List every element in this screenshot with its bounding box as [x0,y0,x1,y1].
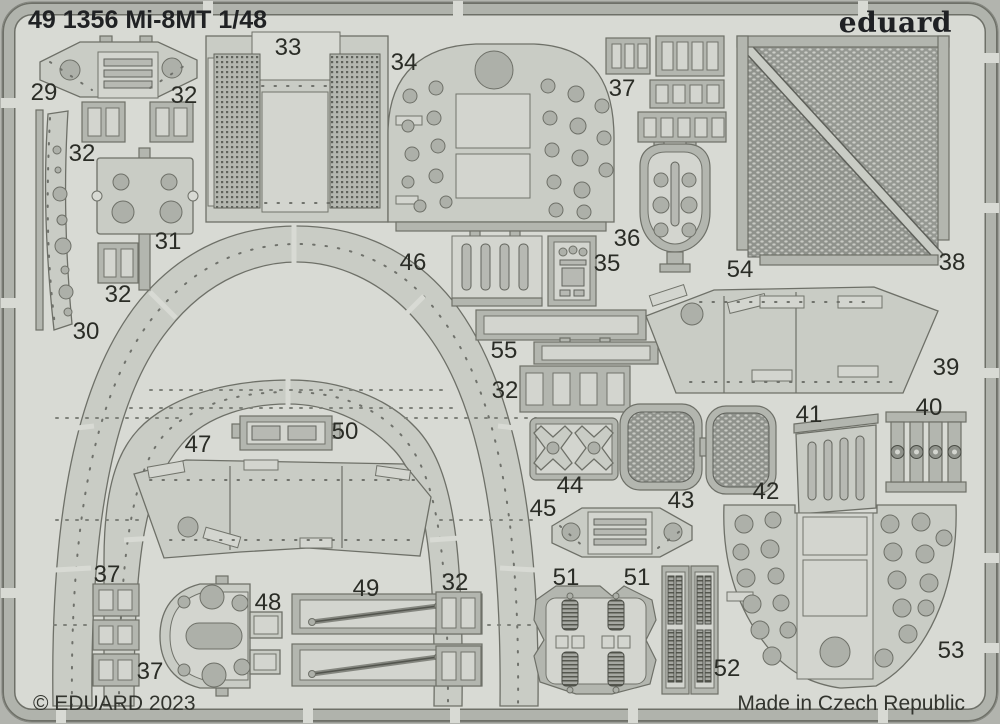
part-label-33: 33 [275,34,302,61]
sheet-title: 49 1356 Mi-8MT 1/48 [28,6,267,34]
part-32-bracket-a [82,102,125,142]
eduard-logo: eduard [839,6,952,39]
part-32-bracket-e [436,646,481,686]
part-label-41: 41 [796,401,823,428]
part-label-37: 37 [94,561,121,588]
part-47-floor-panel [134,460,431,558]
part-label-45: 45 [530,495,557,522]
part-label-42: 42 [753,478,780,505]
part-label-46: 46 [400,249,427,276]
part-50-bracket [232,416,340,450]
fret-sheet-graphic: 49 1356 Mi-8MT 1/48 eduard © EDUARD 2023… [0,0,1000,724]
part-label-32: 32 [442,569,469,596]
part-label-39: 39 [933,354,960,381]
part-label-54: 54 [727,256,754,283]
part-label-35: 35 [594,250,621,277]
part-label-32: 32 [105,281,132,308]
photoetch-fret-photo: 49 1356 Mi-8MT 1/48 eduard © EDUARD 2023… [0,0,1000,724]
part-32-slat-strip [520,366,630,412]
part-label-55: 55 [491,337,518,364]
part-label-50: 50 [332,418,359,445]
part-51-seatbelts [534,586,656,694]
part-32-bracket-c [98,243,138,283]
part-label-32: 32 [171,82,198,109]
part-label-47: 47 [185,431,212,458]
part-label-53: 53 [938,637,965,664]
part-label-31: 31 [155,228,182,255]
part-label-43: 43 [668,487,695,514]
part-label-40: 40 [916,394,943,421]
part-41-louvre-panel [794,414,878,514]
part-label-30: 30 [73,318,100,345]
part-label-29: 29 [31,79,58,106]
part-label-48: 48 [255,589,282,616]
part-45-panel [552,508,692,557]
part-label-52: 52 [714,655,741,682]
part-label-51: 51 [624,564,651,591]
part-label-49: 49 [353,575,380,602]
made-in-text: Made in Czech Republic [737,692,965,715]
part-44-cross-plates [530,418,618,480]
part-label-44: 44 [557,472,584,499]
part-label-34: 34 [391,49,418,76]
part-label-51: 51 [553,564,580,591]
copyright-text: © EDUARD 2023 [33,692,196,715]
part-label-36: 36 [614,225,641,252]
part-32-bracket-d [436,592,481,634]
part-39-floor-panel [646,285,938,393]
part-38-54-mesh-screens [737,36,949,265]
part-label-32: 32 [69,140,96,167]
part-label-37: 37 [137,658,164,685]
part-37-brackets-bottom [93,584,139,686]
part-label-32: 32 [492,377,519,404]
part-35-harness [548,236,596,306]
part-label-37: 37 [609,75,636,102]
part-label-38: 38 [939,249,966,276]
